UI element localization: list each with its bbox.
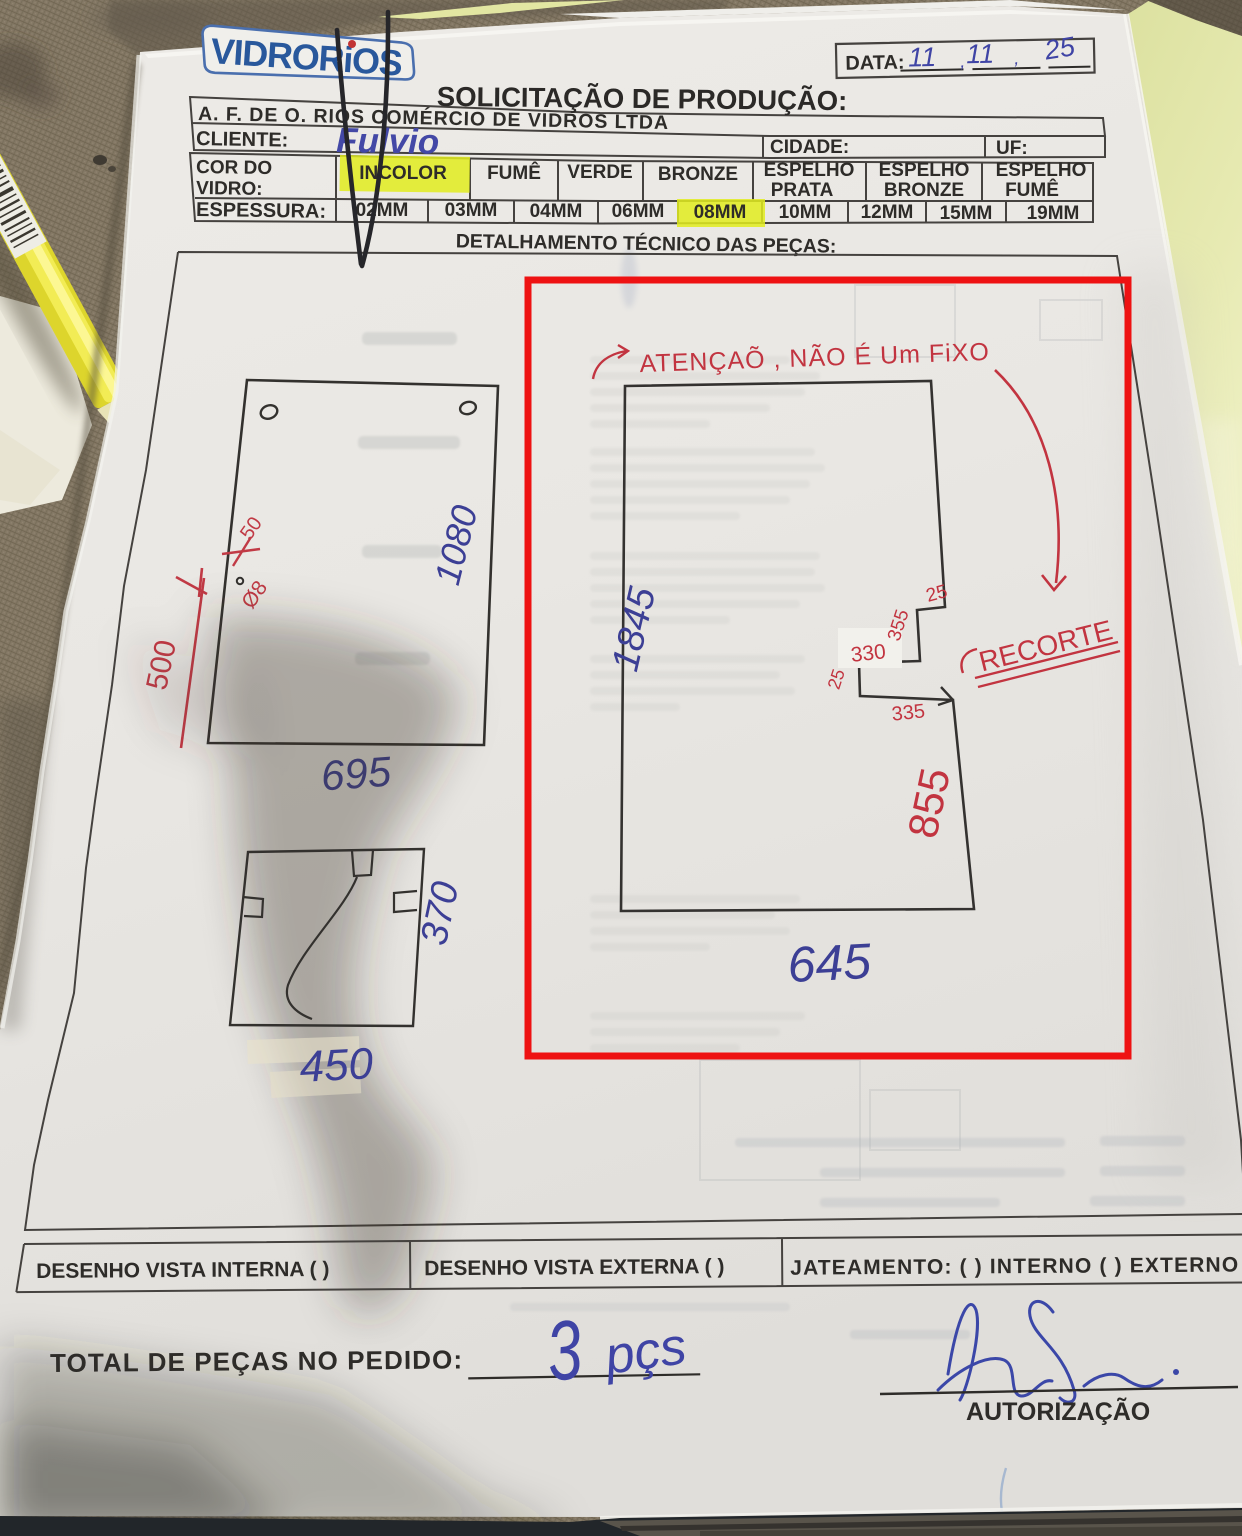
svg-text:DESENHO VISTA EXTERNA ( ): DESENHO VISTA EXTERNA ( ): [424, 1255, 724, 1280]
svg-text:12MM: 12MM: [861, 202, 914, 223]
svg-text:UF:: UF:: [996, 138, 1028, 159]
svg-text:15MM: 15MM: [940, 203, 993, 224]
svg-text:25: 25: [1041, 31, 1077, 66]
svg-text:11: 11: [966, 39, 995, 70]
svg-text:DATA:: DATA:: [845, 52, 905, 75]
svg-text:pçs: pçs: [600, 1317, 690, 1386]
svg-text:SOLICITAÇÃO DE PRODUÇÃO:: SOLICITAÇÃO DE PRODUÇÃO:: [437, 81, 848, 116]
svg-text:ESPELHO: ESPELHO: [996, 160, 1087, 181]
svg-text:FUMÊ: FUMÊ: [487, 162, 541, 184]
svg-text:03MM: 03MM: [445, 200, 498, 221]
svg-text:06MM: 06MM: [612, 201, 665, 222]
svg-text:ESPELHO: ESPELHO: [764, 160, 855, 181]
svg-text:JATEAMENTO: ( ) INTERNO ( ) EX: JATEAMENTO: ( ) INTERNO ( ) EXTERNO: [790, 1254, 1238, 1280]
svg-text:PRATA: PRATA: [771, 180, 834, 201]
svg-text:TOTAL DE PEÇAS NO PEDIDO:: TOTAL DE PEÇAS NO PEDIDO:: [50, 1344, 462, 1378]
svg-text:11: 11: [908, 42, 937, 73]
svg-text:330: 330: [850, 640, 887, 667]
svg-text:VERDE: VERDE: [567, 162, 632, 183]
svg-text:645: 645: [786, 933, 872, 993]
svg-text:CIDADE:: CIDADE:: [770, 137, 849, 158]
svg-text:DESENHO VISTA INTERNA ( ): DESENHO VISTA INTERNA ( ): [36, 1258, 329, 1283]
svg-text:INCOLOR: INCOLOR: [359, 163, 447, 184]
svg-text:08MM: 08MM: [694, 202, 747, 223]
svg-text:,: ,: [1014, 48, 1019, 68]
svg-text:ESPESSURA:: ESPESSURA:: [196, 199, 326, 223]
svg-text:VIDRO:: VIDRO:: [196, 178, 263, 200]
svg-text:BRONZE: BRONZE: [658, 164, 738, 185]
svg-text:COR DO: COR DO: [196, 157, 272, 179]
svg-text:FUMÊ: FUMÊ: [1005, 179, 1059, 201]
svg-text:450: 450: [298, 1039, 374, 1092]
svg-text:02MM: 02MM: [356, 200, 409, 221]
svg-text:04MM: 04MM: [530, 201, 583, 222]
svg-text:10MM: 10MM: [779, 202, 832, 223]
svg-text:,: ,: [960, 51, 965, 71]
svg-text:CLIENTE:: CLIENTE:: [196, 128, 289, 152]
svg-text:19MM: 19MM: [1027, 203, 1080, 224]
svg-text:BRONZE: BRONZE: [884, 180, 964, 201]
svg-text:335: 335: [891, 700, 926, 725]
svg-text:ESPELHO: ESPELHO: [879, 160, 970, 181]
svg-text:AUTORIZAÇÃO: AUTORIZAÇÃO: [966, 1396, 1150, 1426]
